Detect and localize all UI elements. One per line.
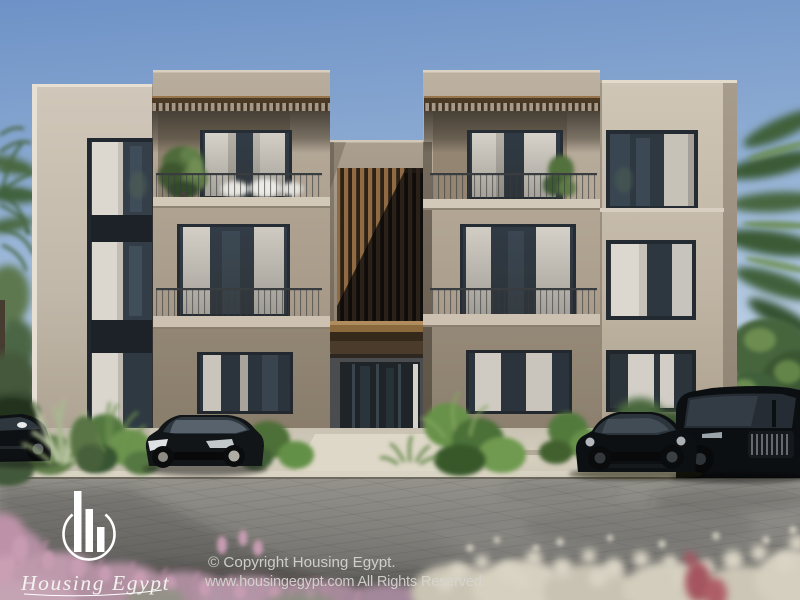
svg-text:© Copyright Housing Egypt.: © Copyright Housing Egypt. (208, 554, 396, 571)
svg-text:www.housingegypt.com All Right: www.housingegypt.com All Rights Reserved… (204, 574, 486, 590)
